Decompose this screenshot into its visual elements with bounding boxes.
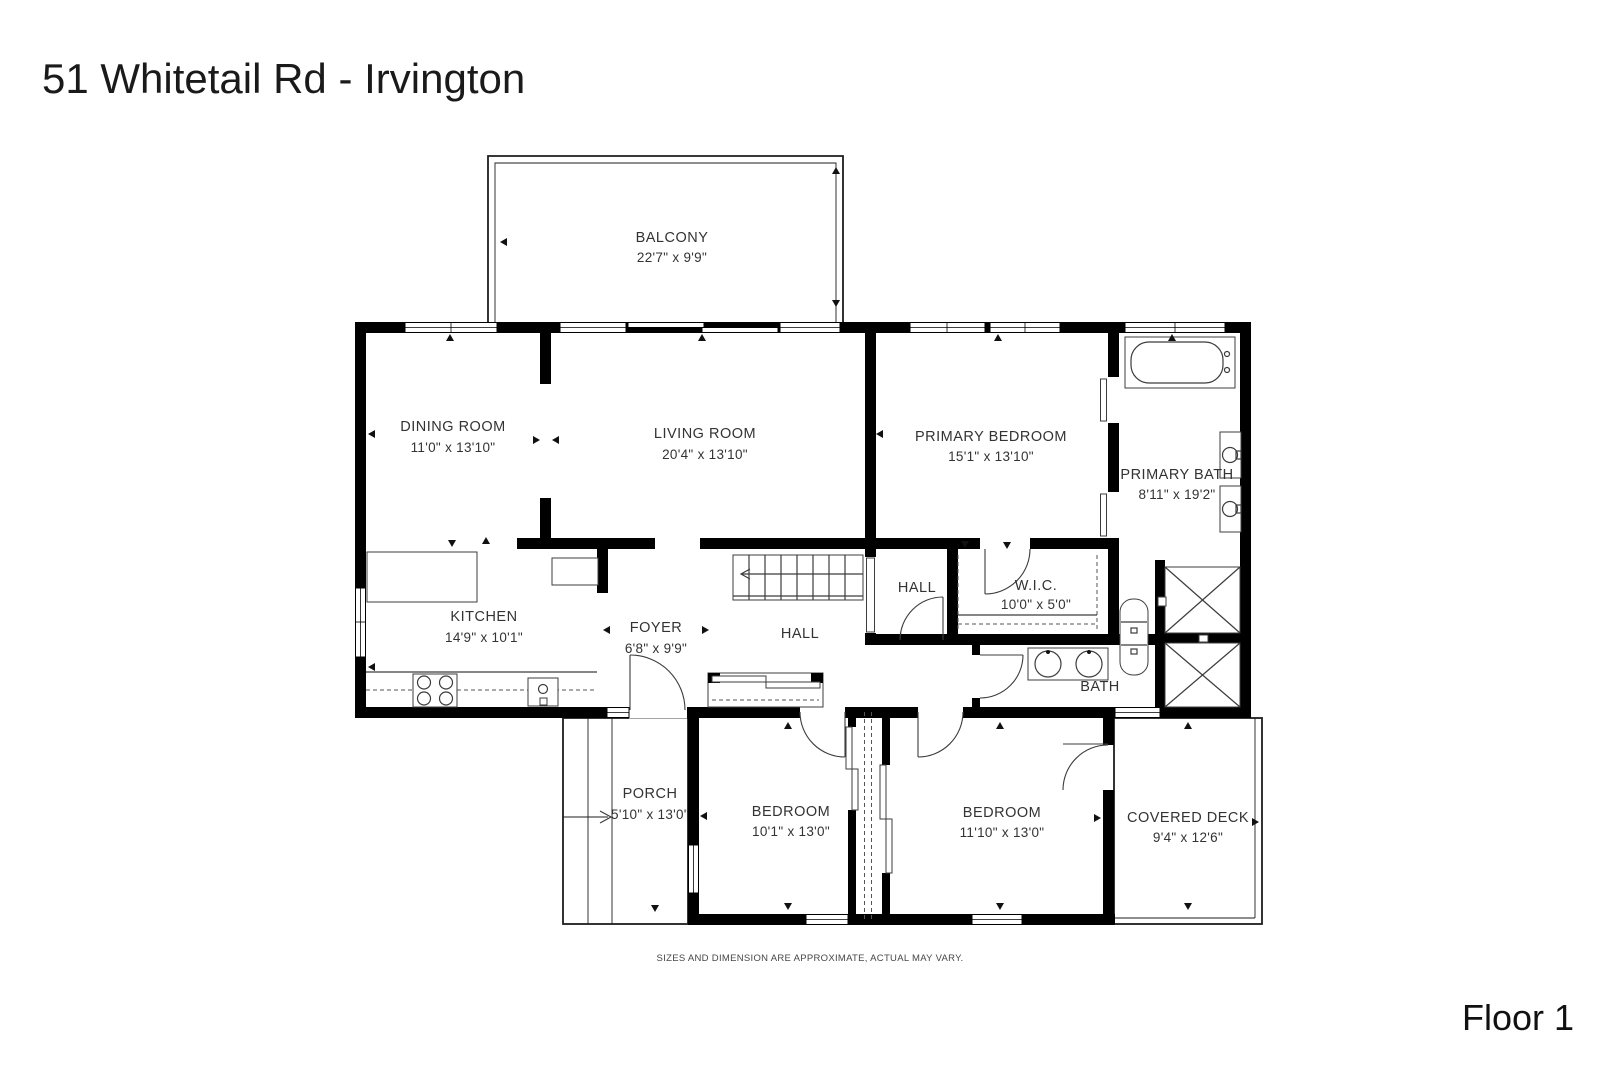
hall-closet	[708, 673, 823, 707]
window	[689, 845, 699, 893]
primary-bedroom-label: PRIMARY BEDROOM	[915, 429, 1067, 445]
primary-bath-label: PRIMARY BATH	[1120, 467, 1233, 483]
porch-dims: 5'10" x 13'0"	[611, 807, 689, 822]
balcony-label: BALCONY	[636, 230, 709, 246]
deck-door	[1063, 744, 1108, 790]
window	[1115, 708, 1160, 718]
bedroom1-dims: 10'1" x 13'0"	[752, 824, 830, 839]
covered-deck-label: COVERED DECK	[1127, 810, 1249, 826]
bedroom1-door	[800, 712, 845, 757]
floor-plan-page: BALCONY 22'7" x 9'9" DINING ROOM 11'0" x…	[0, 0, 1620, 1080]
dining-label: DINING ROOM	[400, 419, 505, 435]
window	[1125, 323, 1225, 333]
bath-label: BATH	[1080, 679, 1120, 695]
living-dims: 20'4" x 13'10"	[662, 447, 748, 462]
hall-small-label: HALL	[898, 580, 936, 596]
kitchen-label: KITCHEN	[450, 609, 517, 625]
toilet	[1120, 599, 1148, 675]
porch-label: PORCH	[623, 786, 678, 802]
window	[990, 323, 1060, 333]
page-title: 51 Whitetail Rd - Irvington	[42, 55, 525, 102]
bath-vanity	[1028, 648, 1108, 680]
wic-dims: 10'0" x 5'0"	[1001, 597, 1071, 612]
covered-deck-dims: 9'4" x 12'6"	[1153, 830, 1223, 845]
window	[910, 323, 985, 333]
floor-plan-canvas: BALCONY 22'7" x 9'9" DINING ROOM 11'0" x…	[0, 0, 1620, 1080]
shower-primary	[1158, 567, 1240, 633]
bedroom1-label: BEDROOM	[752, 804, 830, 820]
bath-door	[980, 655, 1023, 698]
stove	[413, 674, 457, 707]
dining-dims: 11'0" x 13'10"	[411, 440, 496, 455]
window	[806, 915, 848, 925]
bedroom2-dims: 11'10" x 13'0"	[960, 825, 1045, 840]
kitchen-cabinet	[552, 558, 598, 585]
kitchen-sink	[528, 678, 558, 706]
window	[972, 915, 1022, 925]
foyer-label: FOYER	[630, 620, 682, 636]
window	[405, 323, 497, 333]
kitchen-dims: 14'9" x 10'1"	[445, 630, 523, 645]
window	[607, 708, 629, 718]
shower-bath	[1165, 635, 1240, 707]
foyer-dims: 6'8" x 9'9"	[625, 641, 687, 656]
balcony-dims: 22'7" x 9'9"	[637, 250, 707, 265]
small-hall-door	[900, 597, 943, 640]
disclaimer-text: SIZES AND DIMENSION ARE APPROXIMATE, ACT…	[657, 953, 964, 964]
bedroom2-door	[918, 712, 963, 757]
floor-label: Floor 1	[1462, 997, 1574, 1038]
window	[780, 323, 840, 333]
living-label: LIVING ROOM	[654, 426, 756, 442]
bedroom-closet-rods	[865, 712, 872, 920]
primary-bath-dims: 8'11" x 19'2"	[1139, 487, 1216, 502]
bedroom2-label: BEDROOM	[963, 805, 1041, 821]
primary-bedroom-dims: 15'1" x 13'10"	[948, 449, 1034, 464]
kitchen-island	[367, 552, 477, 602]
staircase	[733, 555, 863, 600]
bath-fixtures	[1028, 337, 1241, 707]
window	[560, 323, 626, 333]
entry-door	[630, 655, 685, 710]
wic-label: W.I.C.	[1015, 578, 1057, 594]
window	[356, 588, 366, 657]
bathtub	[1125, 337, 1235, 388]
hall-label: HALL	[781, 626, 819, 642]
